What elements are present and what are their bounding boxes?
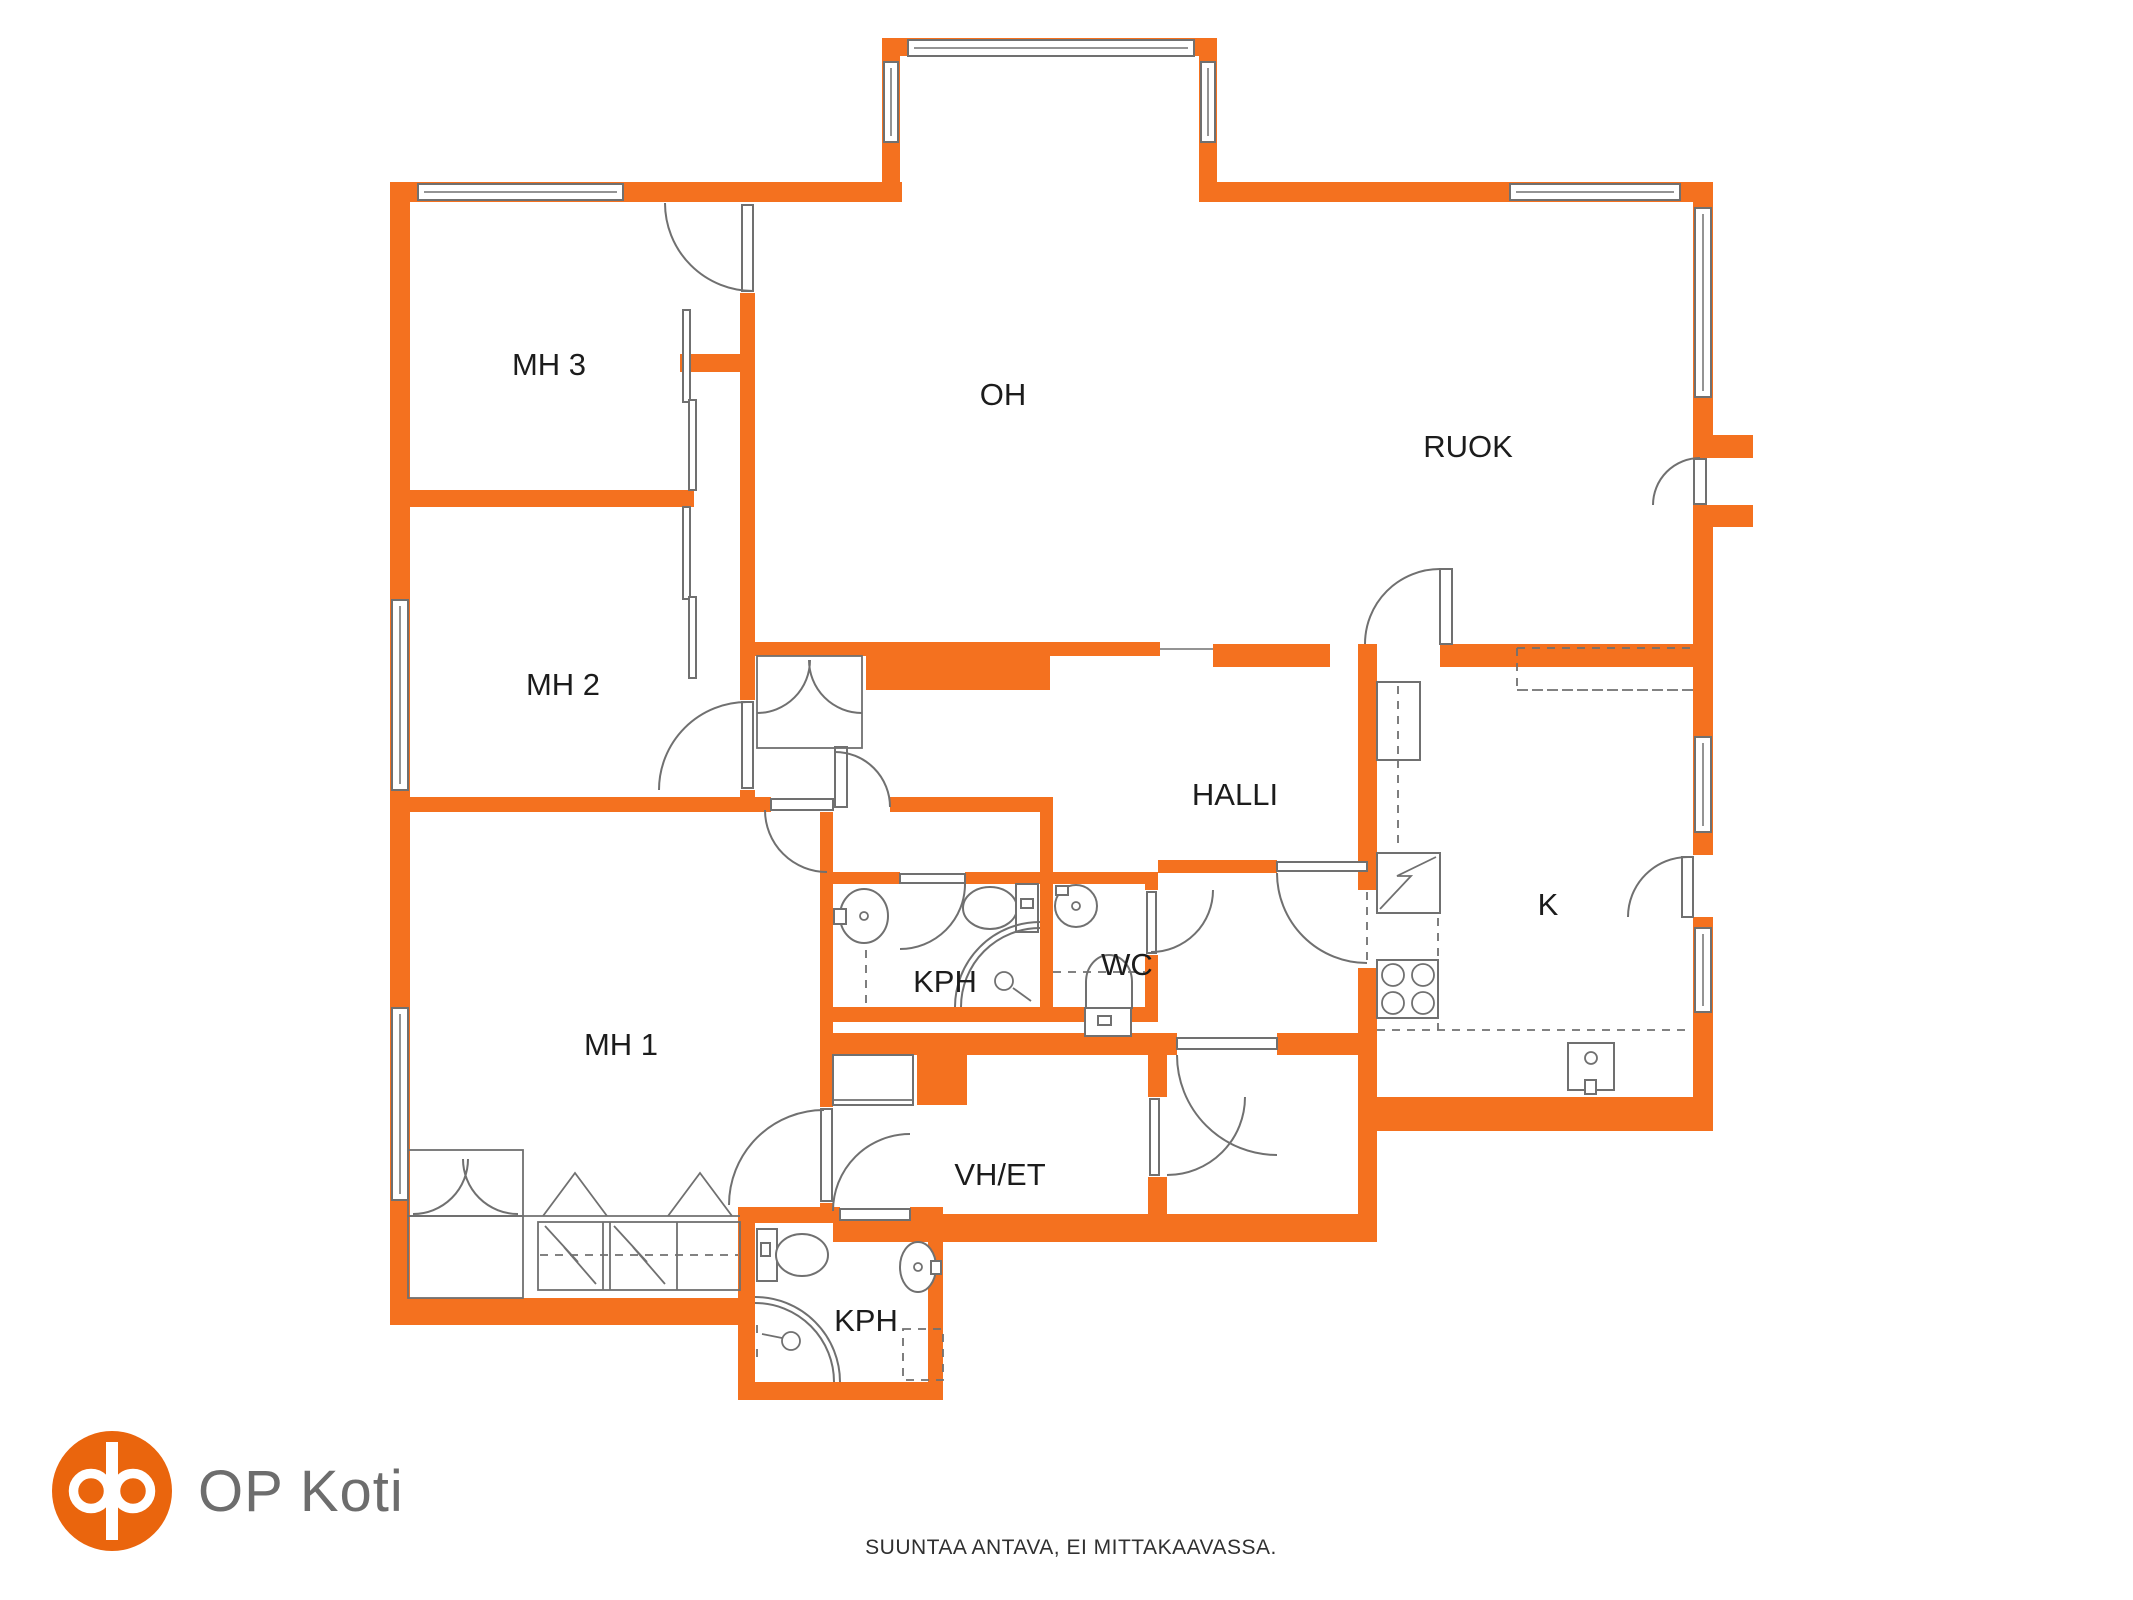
window-ruok-top xyxy=(1510,184,1680,200)
room-label-halli: HALLI xyxy=(1192,777,1278,812)
room-label-mh1: MH 1 xyxy=(584,1027,658,1062)
door-hall-corridor xyxy=(835,747,890,807)
room-label-k: K xyxy=(1538,887,1559,922)
bifold-door-icon xyxy=(543,1173,607,1216)
kph2-toilet xyxy=(757,1229,828,1281)
wc-basin xyxy=(1055,885,1097,927)
door-ruok-k xyxy=(1365,569,1452,644)
window-balcony-left xyxy=(884,62,898,142)
window-balcony-right xyxy=(1201,62,1215,142)
window-ruok-right xyxy=(1695,208,1711,397)
floorplan-drawing: MH 3 OH RUOK MH 2 HALLI KPH WC K MH 1 VH… xyxy=(0,0,2133,1600)
room-label-ruok: RUOK xyxy=(1423,429,1513,464)
disclaimer-text: SUUNTAA ANTAVA, EI MITTAKAAVASSA. xyxy=(865,1536,1277,1559)
door-vh-east xyxy=(1150,1097,1245,1175)
windows xyxy=(392,40,1711,1200)
bifold-door-icon xyxy=(668,1173,732,1216)
room-label-oh: OH xyxy=(980,377,1027,412)
logo-text: OP Koti xyxy=(198,1459,404,1524)
room-label-kph2: KPH xyxy=(834,1303,898,1338)
kph-toilet xyxy=(963,884,1038,932)
doors xyxy=(408,203,1706,1220)
door-mh1-vh xyxy=(729,1109,832,1205)
window-mh1-left xyxy=(392,1008,408,1200)
closet-double-door-mh1 xyxy=(408,1150,523,1216)
door-exterior-kitchen xyxy=(1628,857,1693,917)
stove xyxy=(1377,960,1438,1018)
op-koti-logo: OP Koti xyxy=(52,1431,404,1551)
door-mh3 xyxy=(665,203,753,291)
window-kitchen-right-1 xyxy=(1695,737,1711,832)
room-label-kph: KPH xyxy=(913,964,977,999)
window-balcony-top xyxy=(908,40,1194,56)
kph2-shower xyxy=(755,1297,840,1382)
room-label-vh-et: VH/ET xyxy=(954,1157,1045,1192)
kitchen-cabinet-tall xyxy=(1377,682,1420,850)
window-mh3-top xyxy=(418,184,623,200)
door-halli-south xyxy=(1277,862,1367,963)
window-kitchen-right-2 xyxy=(1695,928,1711,1012)
kph-basin xyxy=(834,889,888,943)
floorplan-page: MH 3 OH RUOK MH 2 HALLI KPH WC K MH 1 VH… xyxy=(0,0,2133,1600)
room-label-wc: WC xyxy=(1101,947,1153,982)
vh-wardrobe xyxy=(833,1055,913,1105)
fridge-symbol xyxy=(1377,853,1440,913)
door-exterior-ruok xyxy=(1653,458,1706,505)
room-label-mh3: MH 3 xyxy=(512,347,586,382)
kitchen-sink xyxy=(1568,1043,1614,1094)
door-wc xyxy=(1147,890,1213,953)
walls xyxy=(390,38,1753,1400)
door-mh2 xyxy=(659,702,753,790)
door-hall-vh xyxy=(1177,1038,1277,1155)
door-kph2 xyxy=(833,1134,910,1220)
closet-double-door-hall xyxy=(757,656,862,748)
window-mh2-left xyxy=(392,600,408,790)
room-label-mh2: MH 2 xyxy=(526,667,600,702)
door-kph xyxy=(900,874,965,949)
